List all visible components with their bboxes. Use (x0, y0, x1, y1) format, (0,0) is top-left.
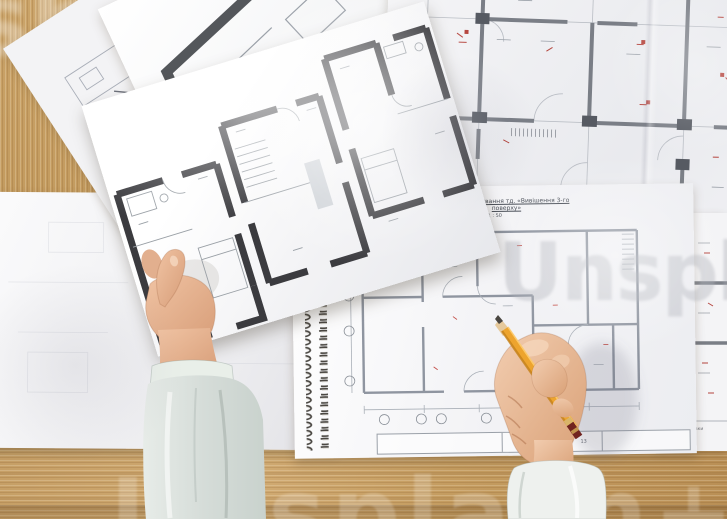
right-hand (450, 300, 660, 519)
right-sleeve (507, 461, 606, 519)
left-sleeve (143, 375, 266, 519)
left-hand (70, 222, 270, 519)
photo-scene: Unsplash+ sh+ (0, 0, 727, 519)
